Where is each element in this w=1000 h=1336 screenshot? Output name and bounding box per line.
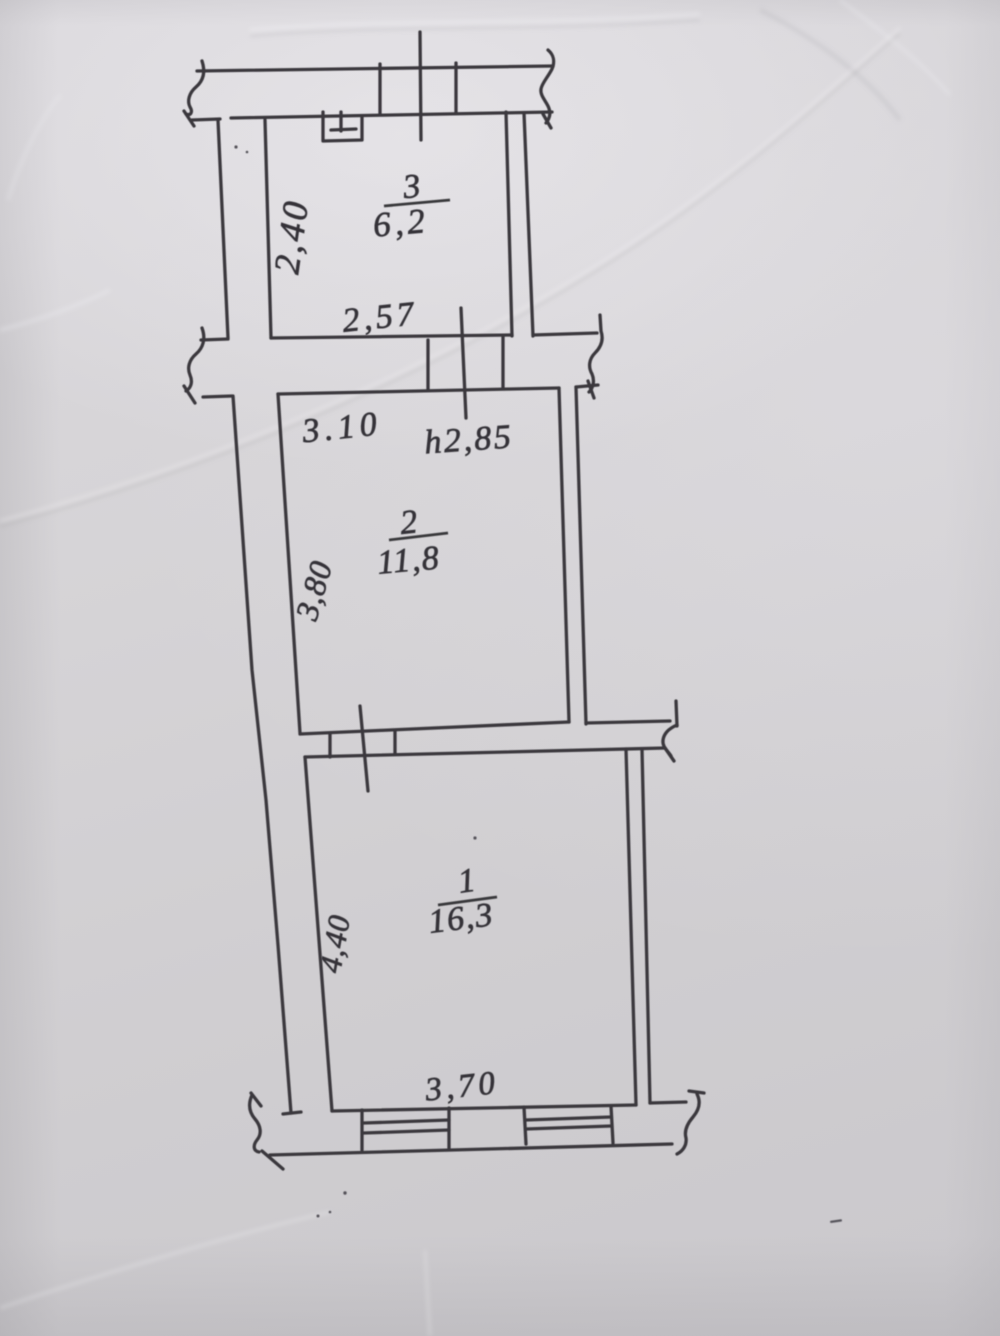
svg-text:3: 3 bbox=[400, 168, 422, 207]
svg-text:2,57: 2,57 bbox=[341, 295, 420, 340]
svg-text:16,3: 16,3 bbox=[426, 896, 496, 941]
svg-text:6,2: 6,2 bbox=[371, 201, 430, 245]
svg-text:1: 1 bbox=[456, 862, 478, 901]
svg-text:h2,85: h2,85 bbox=[423, 418, 514, 461]
svg-text:3,80: 3,80 bbox=[288, 556, 339, 625]
svg-text:2,40: 2,40 bbox=[266, 196, 316, 276]
svg-text:3,70: 3,70 bbox=[423, 1065, 501, 1109]
svg-text:11,8: 11,8 bbox=[376, 539, 442, 581]
svg-text:3.10: 3.10 bbox=[300, 405, 384, 450]
